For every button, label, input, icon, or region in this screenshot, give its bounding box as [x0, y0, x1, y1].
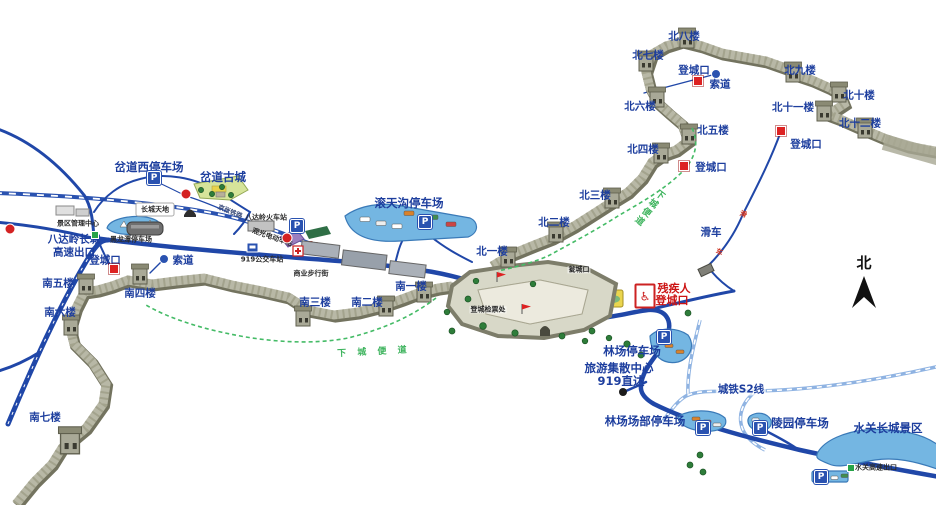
entrance-marker-north-top: [693, 76, 703, 86]
road-junction-dot-west: [5, 224, 16, 235]
tower-label-north-2: 北二楼: [538, 217, 570, 228]
entrance-label-east: 登城口: [790, 139, 822, 150]
exit-marker-west: [91, 231, 99, 239]
commercial-street-label: 商业步行街: [294, 270, 329, 277]
tower-label-south-6: 南六楼: [44, 307, 76, 318]
cableway-station-dot-south: [159, 254, 169, 264]
heilongtan-parking-label: 黑龙潭停车场: [110, 236, 152, 243]
parking-icon-guntiangou: P: [418, 215, 432, 229]
tower-label-south-5: 南五楼: [42, 278, 74, 289]
tower-label-north-6: 北六楼: [624, 101, 656, 112]
tower-label-north-9: 北九楼: [784, 65, 816, 76]
bus-919-station-label: 919公交车站: [241, 256, 284, 263]
parking-icon-linchang: P: [657, 330, 671, 344]
entrance-marker-north-mid: [679, 161, 689, 171]
cableway-label-north: 索道: [710, 79, 731, 90]
compass-north-label: 北: [856, 256, 871, 272]
expressway-exit-label-line2: 高速出口: [53, 247, 95, 258]
parking-icon-sightseeing: P: [290, 219, 304, 233]
slide-label: 滑车: [701, 227, 722, 238]
parking-icon-linchang-hq: P: [696, 421, 710, 435]
bus-terminus-dot: [619, 388, 627, 396]
tower-label-north-3: 北三楼: [579, 190, 611, 201]
disabled-entrance-label-line1: 残疾人: [658, 283, 691, 295]
tower-label-north-11: 北十一楼: [772, 102, 814, 113]
north-arrow-icon: [852, 276, 876, 308]
linchang-hq-parking-label: 林场场部停车场: [605, 415, 686, 427]
guntiangou-parking-label: 滚天沟停车场: [375, 197, 444, 209]
bus-919-direct-label: 919直达: [597, 375, 644, 387]
train-station-label: 八达岭火车站: [245, 214, 287, 221]
s2-line-label: 城铁S2线: [716, 384, 766, 395]
tower-label-north-7: 北七楼: [632, 50, 664, 61]
tourist-center-label: 旅游集散中心: [585, 362, 654, 374]
tower-label-north-1: 北一楼: [476, 246, 508, 257]
entrance-marker-south: [109, 264, 119, 274]
tower-label-south-7: 南七楼: [29, 412, 61, 423]
road-junction-dot-chadao: [181, 189, 192, 200]
lingyuan-parking-label: 陵园停车场: [771, 417, 829, 429]
tower-label-south-3: 南三楼: [299, 297, 331, 308]
entrance-label-north-mid: 登城口: [695, 162, 727, 173]
tower-label-south-4: 南四楼: [124, 288, 156, 299]
badaling-great-wall-map: 北一楼 北二楼 北三楼 北四楼 北五楼 北六楼 北七楼 北八楼 北九楼 北十楼 …: [0, 0, 936, 505]
shuiguan-exit-label: 水关高速出口: [855, 464, 897, 471]
tower-label-north-10: 北十楼: [843, 90, 875, 101]
tower-label-north-4: 北四楼: [627, 144, 659, 155]
weng-gate-label: 瓮城口: [568, 266, 591, 273]
entrance-marker-east: [776, 126, 786, 136]
cableway-label-south: 索道: [173, 255, 194, 266]
disabled-entrance-label-line2: 登城口: [656, 295, 689, 307]
chadao-old-town-label: 岔道古城: [200, 171, 246, 183]
fort-complex: [448, 262, 616, 338]
parking-icon-lingyuan: P: [753, 421, 767, 435]
parking-icon-shuiguan: P: [814, 470, 828, 484]
exit-marker-shuiguan: [847, 464, 855, 472]
road-junction-dot-station: [282, 233, 293, 244]
great-wall-world-label: 长城天地: [141, 206, 169, 213]
tower-label-south-1: 南一楼: [395, 281, 427, 292]
cableway-station-dot-north: [711, 69, 721, 79]
tower-label-north-8: 北八楼: [668, 31, 700, 42]
admin-center-label: 景区管理中心: [57, 220, 99, 227]
parking-icon-chadao-west: P: [147, 171, 161, 185]
tower-label-north-12: 北十二楼: [839, 118, 881, 129]
linchang-parking-label: 林场停车场: [603, 345, 661, 357]
ticket-office-label: 登城检票处: [470, 306, 507, 313]
entrance-label-north-top: 登城口: [678, 65, 710, 76]
tower-label-south-2: 南二楼: [351, 297, 383, 308]
wheelchair-icon: ♿: [635, 284, 656, 309]
shuiguan-scenic-label: 水关长城景区: [854, 422, 923, 434]
tower-label-north-5: 北五楼: [697, 125, 729, 136]
